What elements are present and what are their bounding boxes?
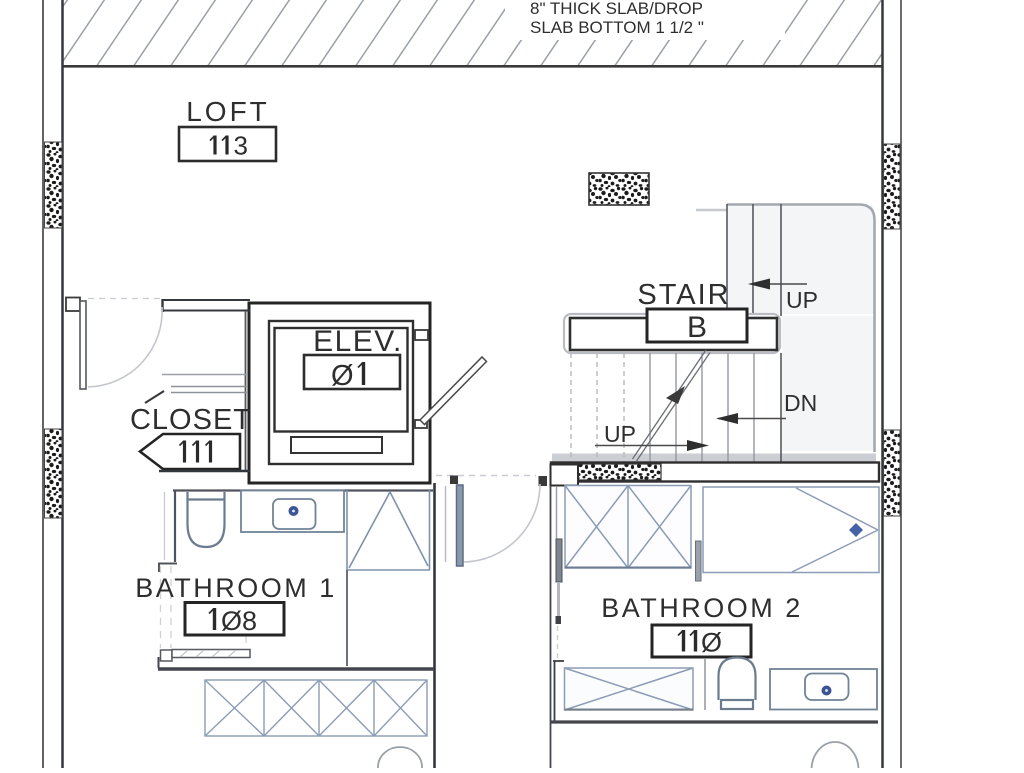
svg-text:BATHROOM 1: BATHROOM 1 (135, 573, 337, 603)
svg-text:UP: UP (786, 287, 818, 313)
svg-text:SLAB BOTTOM 1 1/2 ": SLAB BOTTOM 1 1/2 " (530, 18, 704, 37)
svg-text:DN: DN (784, 390, 817, 416)
svg-text:3: 3 (234, 131, 248, 161)
svg-text:8" THICK SLAB/DROP: 8" THICK SLAB/DROP (530, 0, 703, 18)
svg-text:STAIR: STAIR (637, 279, 730, 311)
svg-text:Ø8: Ø8 (221, 606, 257, 636)
svg-text:ELEV.: ELEV. (313, 325, 403, 358)
svg-text:CLOSET: CLOSET (130, 404, 252, 436)
svg-text:UP: UP (604, 421, 636, 447)
svg-text:Ø: Ø (331, 360, 354, 392)
svg-text:B: B (687, 311, 707, 344)
svg-text:LOFT: LOFT (186, 96, 270, 127)
svg-text:Ø: Ø (701, 628, 722, 658)
svg-text:BATHROOM 2: BATHROOM 2 (601, 593, 803, 623)
